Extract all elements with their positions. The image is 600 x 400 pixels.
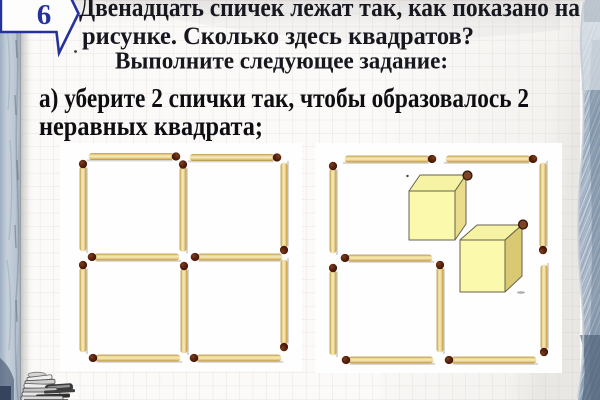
svg-text:неравных квадрата;: неравных квадрата; <box>39 111 263 141</box>
svg-text:а) уберите 2 спички так, чтобы: а) уберите 2 спички так, чтобы образовал… <box>39 83 529 113</box>
svg-text:Двенадцать спичек лежат так, к: Двенадцать спичек лежат так, как показан… <box>79 0 580 22</box>
svg-text:6: 6 <box>37 0 52 31</box>
svg-text:Выполните следующее задание:: Выполните следующее задание: <box>115 48 448 75</box>
svg-text:рисунке. Сколько здесь квадрат: рисунке. Сколько здесь квадратов? <box>82 21 474 50</box>
